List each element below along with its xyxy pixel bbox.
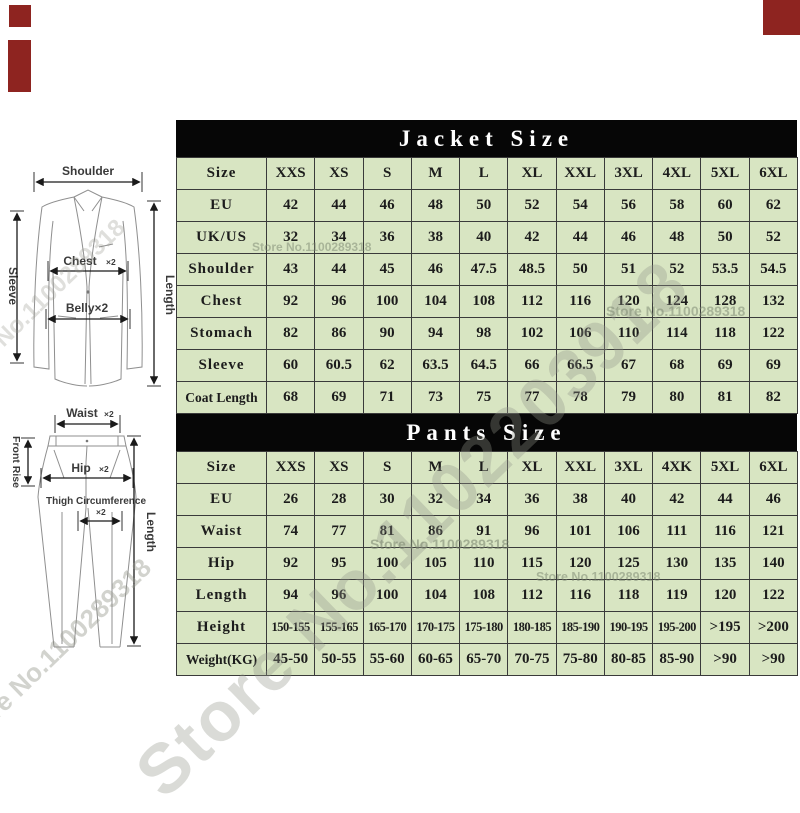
table-cell: 68 [653,350,701,382]
table-cell: 165-170 [364,612,412,644]
table-cell: XXS [267,452,315,484]
sleeve-label: Sleeve [6,267,20,305]
table-cell: 60 [267,350,315,382]
table-cell: 62 [364,350,412,382]
table-cell: 69 [750,350,798,382]
table-cell: 195-200 [653,612,701,644]
jacket-size-table: SizeXXSXSSMLXLXXL3XL4XL5XL6XLEU424446485… [176,157,798,414]
table-cell: 4XL [653,158,701,190]
table-cell: 85-90 [653,644,701,676]
red-corner-mark [9,5,31,27]
table-cell: 132 [750,286,798,318]
table-row: Coat Length6869717375777879808182 [177,382,798,414]
table-cell: 124 [653,286,701,318]
table-cell: 42 [267,190,315,222]
table-cell: 106 [605,516,653,548]
table-cell: 119 [653,580,701,612]
table-cell: 108 [460,580,508,612]
table-row: SizeXXSXSSMLXLXXL3XL4XL5XL6XL [177,158,798,190]
table-cell: 104 [412,286,460,318]
table-cell: 86 [412,516,460,548]
table-cell: 32 [412,484,460,516]
pants-diagram: Waist ×2 Front Rise Hip ×2 Thigh Circumf… [0,400,175,700]
pants-size-title: Pants Size [176,414,797,451]
table-cell: 90 [364,318,412,350]
red-corner-mark [8,40,31,92]
table-cell: 53.5 [701,254,749,286]
jacket-size-title: Jacket Size [176,120,797,157]
table-cell: 104 [412,580,460,612]
table-cell: 118 [701,318,749,350]
table-cell: L [460,452,508,484]
table-cell: 120 [701,580,749,612]
table-cell: 6XL [750,158,798,190]
length-label: Length [163,275,175,315]
table-cell: XS [315,158,363,190]
table-cell: 43 [267,254,315,286]
table-cell: 42 [653,484,701,516]
table-cell: 116 [557,580,605,612]
table-cell: 45 [364,254,412,286]
table-cell: 34 [460,484,508,516]
table-cell: 155-165 [315,612,363,644]
table-cell: 26 [267,484,315,516]
table-cell: 91 [460,516,508,548]
table-cell: XXL [557,158,605,190]
table-cell: 38 [412,222,460,254]
shoulder-measure: Shoulder [34,164,142,192]
table-cell: XL [508,452,556,484]
table-row: UK/US3234363840424446485052 [177,222,798,254]
table-cell: 5XL [701,158,749,190]
table-cell: 92 [267,286,315,318]
chest-label: Chest [63,254,96,268]
table-cell: 81 [701,382,749,414]
table-cell: 54 [557,190,605,222]
table-cell: 36 [508,484,556,516]
row-label: Coat Length [177,382,267,414]
table-cell: 46 [412,254,460,286]
table-cell: 112 [508,580,556,612]
table-cell: 94 [267,580,315,612]
table-cell: L [460,158,508,190]
table-cell: 180-185 [508,612,556,644]
table-cell: 78 [557,382,605,414]
row-label: EU [177,190,267,222]
table-cell: 75 [460,382,508,414]
table-cell: 62 [750,190,798,222]
table-row: Shoulder4344454647.548.550515253.554.5 [177,254,798,286]
table-cell: 125 [605,548,653,580]
table-row: EU2628303234363840424446 [177,484,798,516]
table-cell: 114 [653,318,701,350]
table-cell: 52 [750,222,798,254]
table-cell: 73 [412,382,460,414]
table-cell: 185-190 [557,612,605,644]
table-cell: 34 [315,222,363,254]
length-measure: Length [147,201,175,386]
table-cell: 32 [267,222,315,254]
table-row: Sleeve6060.56263.564.56666.567686969 [177,350,798,382]
table-cell: 122 [750,580,798,612]
table-cell: 150-155 [267,612,315,644]
table-cell: 120 [557,548,605,580]
table-cell: 116 [701,516,749,548]
table-cell: 63.5 [412,350,460,382]
table-cell: 70-75 [508,644,556,676]
belly-label: Belly×2 [66,301,109,315]
table-cell: 135 [701,548,749,580]
table-cell: 65-70 [460,644,508,676]
table-cell: 105 [412,548,460,580]
table-cell: 50 [701,222,749,254]
table-cell: 75-80 [557,644,605,676]
table-cell: 42 [508,222,556,254]
table-cell: 100 [364,286,412,318]
table-cell: >90 [750,644,798,676]
table-cell: 96 [315,286,363,318]
table-cell: 98 [460,318,508,350]
red-corner-mark [763,0,800,35]
table-cell: 60 [701,190,749,222]
table-cell: 108 [460,286,508,318]
chest-measure: Chest ×2 [48,254,128,281]
row-label: Height [177,612,267,644]
table-cell: 44 [701,484,749,516]
row-label: Size [177,452,267,484]
table-cell: 170-175 [412,612,460,644]
table-cell: 101 [557,516,605,548]
table-cell: 46 [605,222,653,254]
jacket-outline [34,190,142,386]
table-cell: 46 [750,484,798,516]
table-cell: 110 [460,548,508,580]
sleeve-measure: Sleeve [6,211,24,363]
thigh-x2-label: ×2 [96,507,106,517]
row-label: Chest [177,286,267,318]
row-label: EU [177,484,267,516]
belly-measure: Belly×2 [46,301,130,329]
hip-label: Hip [71,461,90,475]
table-cell: 52 [653,254,701,286]
table-cell: 100 [364,580,412,612]
waist-measure: Waist ×2 [55,406,120,433]
table-cell: 60-65 [412,644,460,676]
table-cell: 175-180 [460,612,508,644]
pants-size-table: SizeXXSXSSMLXLXXL3XL4XK5XL6XLEU262830323… [176,451,798,676]
table-cell: 50 [460,190,508,222]
table-cell: 92 [267,548,315,580]
table-cell: 58 [653,190,701,222]
table-cell: 81 [364,516,412,548]
table-cell: 67 [605,350,653,382]
table-cell: XS [315,452,363,484]
table-cell: 100 [364,548,412,580]
table-cell: 128 [701,286,749,318]
table-cell: 6XL [750,452,798,484]
table-cell: 74 [267,516,315,548]
table-cell: 140 [750,548,798,580]
table-cell: 95 [315,548,363,580]
table-cell: 122 [750,318,798,350]
table-cell: 77 [508,382,556,414]
table-cell: 96 [508,516,556,548]
table-cell: 44 [557,222,605,254]
table-cell: 60.5 [315,350,363,382]
row-label: Hip [177,548,267,580]
table-cell: 66.5 [557,350,605,382]
table-cell: 96 [315,580,363,612]
table-cell: 36 [364,222,412,254]
row-label: Waist [177,516,267,548]
table-cell: 44 [315,190,363,222]
row-label: Weight(KG) [177,644,267,676]
waist-x2-label: ×2 [104,409,114,419]
table-cell: 38 [557,484,605,516]
table-cell: 94 [412,318,460,350]
table-cell: M [412,158,460,190]
thigh-label: Thigh Circumference [46,496,146,507]
front-rise-measure: Front Rise [10,436,35,488]
hip-measure: Hip ×2 [41,461,133,488]
chest-x2-label: ×2 [106,257,116,267]
table-cell: 190-195 [605,612,653,644]
table-cell: 111 [653,516,701,548]
row-label: Size [177,158,267,190]
table-cell: S [364,452,412,484]
table-cell: >195 [701,612,749,644]
table-row: Height150-155155-165165-170170-175175-18… [177,612,798,644]
table-cell: 130 [653,548,701,580]
table-cell: 112 [508,286,556,318]
table-cell: 118 [605,580,653,612]
table-cell: 121 [750,516,798,548]
table-cell: >200 [750,612,798,644]
table-cell: 77 [315,516,363,548]
table-cell: 30 [364,484,412,516]
table-cell: 120 [605,286,653,318]
table-cell: S [364,158,412,190]
table-cell: 69 [315,382,363,414]
hip-x2-label: ×2 [99,464,109,474]
row-label: Stomach [177,318,267,350]
table-row: Waist747781869196101106111116121 [177,516,798,548]
table-cell: M [412,452,460,484]
table-cell: 47.5 [460,254,508,286]
table-cell: 40 [460,222,508,254]
table-cell: 69 [701,350,749,382]
table-cell: 110 [605,318,653,350]
table-cell: 80 [653,382,701,414]
table-cell: 54.5 [750,254,798,286]
table-cell: 116 [557,286,605,318]
waist-label: Waist [66,406,98,420]
table-cell: 56 [605,190,653,222]
thigh-measure: Thigh Circumference ×2 [46,496,146,531]
table-cell: 28 [315,484,363,516]
table-cell: 50-55 [315,644,363,676]
table-cell: 79 [605,382,653,414]
table-cell: 71 [364,382,412,414]
table-row: Weight(KG)45-5050-5555-6060-6565-7070-75… [177,644,798,676]
table-cell: 82 [267,318,315,350]
pants-length-label: Length [144,512,158,552]
row-label: Shoulder [177,254,267,286]
shoulder-label: Shoulder [62,164,114,178]
table-cell: 66 [508,350,556,382]
table-cell: 82 [750,382,798,414]
jacket-diagram: Shoulder Chest ×2 Belly×2 Sleeve Length [0,155,175,400]
table-row: SizeXXSXSSMLXLXXL3XL4XK5XL6XL [177,452,798,484]
table-cell: 3XL [605,158,653,190]
table-row: Chest9296100104108112116120124128132 [177,286,798,318]
table-cell: 64.5 [460,350,508,382]
row-label: Length [177,580,267,612]
table-cell: >90 [701,644,749,676]
table-cell: 3XL [605,452,653,484]
table-cell: 40 [605,484,653,516]
table-cell: 102 [508,318,556,350]
row-label: Sleeve [177,350,267,382]
table-cell: 45-50 [267,644,315,676]
table-cell: XXL [557,452,605,484]
table-cell: 44 [315,254,363,286]
table-cell: 55-60 [364,644,412,676]
table-cell: 50 [557,254,605,286]
table-row: EU4244464850525456586062 [177,190,798,222]
row-label: UK/US [177,222,267,254]
table-cell: 48 [412,190,460,222]
table-row: Stomach8286909498102106110114118122 [177,318,798,350]
table-cell: 46 [364,190,412,222]
table-cell: XL [508,158,556,190]
front-rise-label: Front Rise [10,436,22,488]
table-cell: XXS [267,158,315,190]
table-cell: 80-85 [605,644,653,676]
table-cell: 4XK [653,452,701,484]
table-row: Length9496100104108112116118119120122 [177,580,798,612]
table-cell: 86 [315,318,363,350]
table-cell: 106 [557,318,605,350]
table-cell: 115 [508,548,556,580]
table-cell: 51 [605,254,653,286]
table-cell: 52 [508,190,556,222]
table-cell: 68 [267,382,315,414]
table-cell: 48.5 [508,254,556,286]
table-row: Hip9295100105110115120125130135140 [177,548,798,580]
table-cell: 48 [653,222,701,254]
table-cell: 5XL [701,452,749,484]
